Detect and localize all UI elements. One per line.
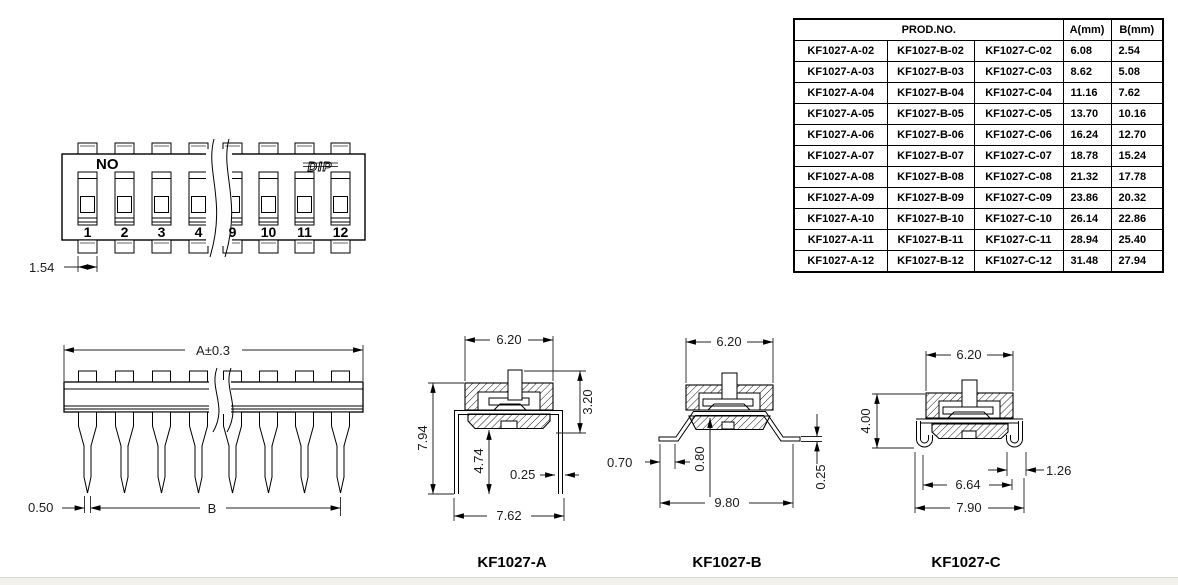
part-b: KF1027-B-02: [887, 41, 974, 62]
dim-b-bottom-width: 9.80: [660, 444, 793, 510]
table-row: KF1027-A-05KF1027-B-05KF1027-C-0513.7010…: [794, 104, 1163, 125]
svg-text:1.26: 1.26: [1046, 463, 1071, 478]
dim-a-value: 28.94: [1063, 230, 1111, 251]
part-b: KF1027-B-09: [887, 188, 974, 209]
switch-4: [189, 172, 208, 225]
dim-b-value: 25.40: [1111, 230, 1163, 251]
table-row: KF1027-A-11KF1027-B-11KF1027-C-1128.9425…: [794, 230, 1163, 251]
dim-a-bottom-width: 7.62: [454, 498, 564, 523]
svg-text:6.64: 6.64: [955, 477, 980, 492]
switch-10: [259, 172, 278, 225]
dim-b-value: 17.78: [1111, 167, 1163, 188]
dim-a-value: 26.14: [1063, 209, 1111, 230]
svg-text:3: 3: [158, 224, 166, 240]
svg-text:7.90: 7.90: [956, 500, 981, 515]
table-row: KF1027-A-06KF1027-B-06KF1027-C-0616.2412…: [794, 125, 1163, 146]
section-b-drawing: 6.20 0.70 0.80: [607, 334, 828, 571]
dim-a-value: 8.62: [1063, 62, 1111, 83]
svg-text:4: 4: [195, 224, 203, 240]
svg-text:0.80: 0.80: [692, 446, 707, 471]
col-b-header: B(mm): [1111, 19, 1163, 41]
part-c: KF1027-C-12: [974, 251, 1063, 273]
front-view-drawing: NO DIP 1 2 3 4 9 10 11 12 1.54: [29, 139, 365, 275]
part-a: KF1027-A-11: [794, 230, 887, 251]
part-c: KF1027-C-07: [974, 146, 1063, 167]
dim-a-value: 16.24: [1063, 125, 1111, 146]
svg-text:6.20: 6.20: [956, 347, 981, 362]
part-c: KF1027-C-05: [974, 104, 1063, 125]
part-c: KF1027-C-04: [974, 83, 1063, 104]
orientation-label: NO: [96, 156, 119, 173]
part-b: KF1027-B-10: [887, 209, 974, 230]
table-row: KF1027-A-08KF1027-B-08KF1027-C-0821.3217…: [794, 167, 1163, 188]
part-b: KF1027-B-03: [887, 62, 974, 83]
dim-pin-span: B: [91, 497, 341, 516]
dim-a-value: 31.48: [1063, 251, 1111, 273]
svg-text:0.25: 0.25: [510, 467, 535, 482]
dim-b-value: 15.24: [1111, 146, 1163, 167]
switch-12: [331, 172, 350, 225]
part-c: KF1027-C-08: [974, 167, 1063, 188]
part-b: KF1027-B-08: [887, 167, 974, 188]
part-a: KF1027-A-12: [794, 251, 887, 273]
dim-pin-tip: 0.50: [28, 496, 108, 515]
svg-text:0.50: 0.50: [28, 500, 53, 515]
section-a-label: KF1027-A: [477, 554, 546, 571]
dim-a-value: 11.16: [1063, 83, 1111, 104]
c-upper-body: [926, 380, 1013, 418]
svg-text:2: 2: [121, 224, 129, 240]
part-b: KF1027-B-05: [887, 104, 974, 125]
svg-text:4.00: 4.00: [858, 408, 873, 433]
table-row: KF1027-A-04KF1027-B-04KF1027-C-0411.167.…: [794, 83, 1163, 104]
b-upper-body: [686, 373, 773, 410]
part-b: KF1027-B-06: [887, 125, 974, 146]
dim-b-pin-thickness: 0.25: [801, 414, 828, 490]
table-row: KF1027-A-02KF1027-B-02KF1027-C-026.082.5…: [794, 41, 1163, 62]
part-b: KF1027-B-12: [887, 251, 974, 273]
part-a: KF1027-A-07: [794, 146, 887, 167]
switch-1: [78, 172, 97, 225]
part-c: KF1027-C-06: [974, 125, 1063, 146]
part-c: KF1027-C-03: [974, 62, 1063, 83]
dim-a-value: 23.86: [1063, 188, 1111, 209]
table-row: KF1027-A-09KF1027-B-09KF1027-C-0923.8620…: [794, 188, 1163, 209]
section-c-label: KF1027-C: [931, 554, 1000, 571]
dim-overall-width: A±0.3: [64, 343, 363, 381]
switch-2: [115, 172, 134, 225]
dim-b-value: 22.86: [1111, 209, 1163, 230]
dim-a-pin-thickness: 0.25: [510, 467, 579, 482]
svg-text:1.54: 1.54: [29, 260, 54, 275]
part-c: KF1027-C-10: [974, 209, 1063, 230]
dim-b-value: 2.54: [1111, 41, 1163, 62]
svg-text:0.25: 0.25: [813, 464, 828, 489]
svg-text:10: 10: [261, 224, 277, 240]
part-b: KF1027-B-11: [887, 230, 974, 251]
svg-text:A±0.3: A±0.3: [196, 343, 230, 358]
switch-11: [295, 172, 314, 225]
switch-3: [152, 172, 171, 225]
section-a-drawing: 6.20 7.94 4.74 3.20: [415, 332, 595, 571]
dim-c-body-height: 4.00: [858, 394, 925, 448]
side-view-drawing: A±0.3: [28, 343, 363, 516]
dim-b-foot-length: 0.70: [607, 444, 690, 508]
a-upper-body: [465, 370, 553, 410]
svg-text:3.20: 3.20: [580, 389, 595, 414]
svg-text:9: 9: [229, 224, 237, 240]
page-edge-strip: [0, 577, 1178, 585]
table-row: KF1027-A-10KF1027-B-10KF1027-C-1026.1422…: [794, 209, 1163, 230]
part-a: KF1027-A-09: [794, 188, 887, 209]
part-a: KF1027-A-08: [794, 167, 887, 188]
svg-text:4.74: 4.74: [471, 448, 486, 473]
svg-text:0.70: 0.70: [607, 455, 632, 470]
dim-a-pin-height: 4.74: [471, 430, 489, 494]
svg-text:7.62: 7.62: [496, 508, 521, 523]
part-a: KF1027-A-03: [794, 62, 887, 83]
part-a: KF1027-A-02: [794, 41, 887, 62]
table-row: KF1027-A-07KF1027-B-07KF1027-C-0718.7815…: [794, 146, 1163, 167]
table-header-row: PROD.NO. A(mm) B(mm): [794, 19, 1163, 41]
part-a: KF1027-A-05: [794, 104, 887, 125]
svg-text:11: 11: [297, 224, 312, 240]
part-c: KF1027-C-11: [974, 230, 1063, 251]
part-b: KF1027-B-04: [887, 83, 974, 104]
part-a: KF1027-A-06: [794, 125, 887, 146]
dim-b-value: 20.32: [1111, 188, 1163, 209]
dim-c-inner-span: 6.64: [923, 455, 1012, 492]
svg-text:6.20: 6.20: [496, 332, 521, 347]
part-a: KF1027-A-04: [794, 83, 887, 104]
table-row: KF1027-A-12KF1027-B-12KF1027-C-1231.4827…: [794, 251, 1163, 273]
svg-text:7.94: 7.94: [415, 425, 430, 450]
section-b-label: KF1027-B: [692, 554, 761, 571]
side-pins: [79, 412, 350, 493]
col-a-header: A(mm): [1063, 19, 1111, 41]
svg-text:B: B: [208, 501, 217, 516]
datasheet-page: NO DIP 1 2 3 4 9 10 11 12 1.54: [0, 0, 1178, 585]
svg-text:9.80: 9.80: [714, 495, 739, 510]
product-spec-table: PROD.NO. A(mm) B(mm) KF1027-A-02KF1027-B…: [793, 18, 1164, 273]
dim-a-value: 21.32: [1063, 167, 1111, 188]
section-c-drawing: 6.20 4.00: [858, 347, 1071, 571]
part-a: KF1027-A-10: [794, 209, 887, 230]
dim-a-value: 6.08: [1063, 41, 1111, 62]
part-c: KF1027-C-09: [974, 188, 1063, 209]
dim-c-lead-width: 1.26: [988, 452, 1071, 478]
svg-text:12: 12: [333, 224, 349, 240]
dim-b-value: 12.70: [1111, 125, 1163, 146]
dim-b-value: 5.08: [1111, 62, 1163, 83]
part-b: KF1027-B-07: [887, 146, 974, 167]
dim-pitch: 1.54: [29, 256, 97, 275]
dim-b-value: 10.16: [1111, 104, 1163, 125]
dim-a-value: 18.78: [1063, 146, 1111, 167]
part-c: KF1027-C-02: [974, 41, 1063, 62]
dim-a-value: 13.70: [1063, 104, 1111, 125]
svg-text:6.20: 6.20: [716, 334, 741, 349]
dim-b-value: 7.62: [1111, 83, 1163, 104]
table-row: KF1027-A-03KF1027-B-03KF1027-C-038.625.0…: [794, 62, 1163, 83]
svg-text:1: 1: [84, 224, 92, 240]
dim-b-value: 27.94: [1111, 251, 1163, 273]
prod-no-header: PROD.NO.: [794, 19, 1063, 41]
